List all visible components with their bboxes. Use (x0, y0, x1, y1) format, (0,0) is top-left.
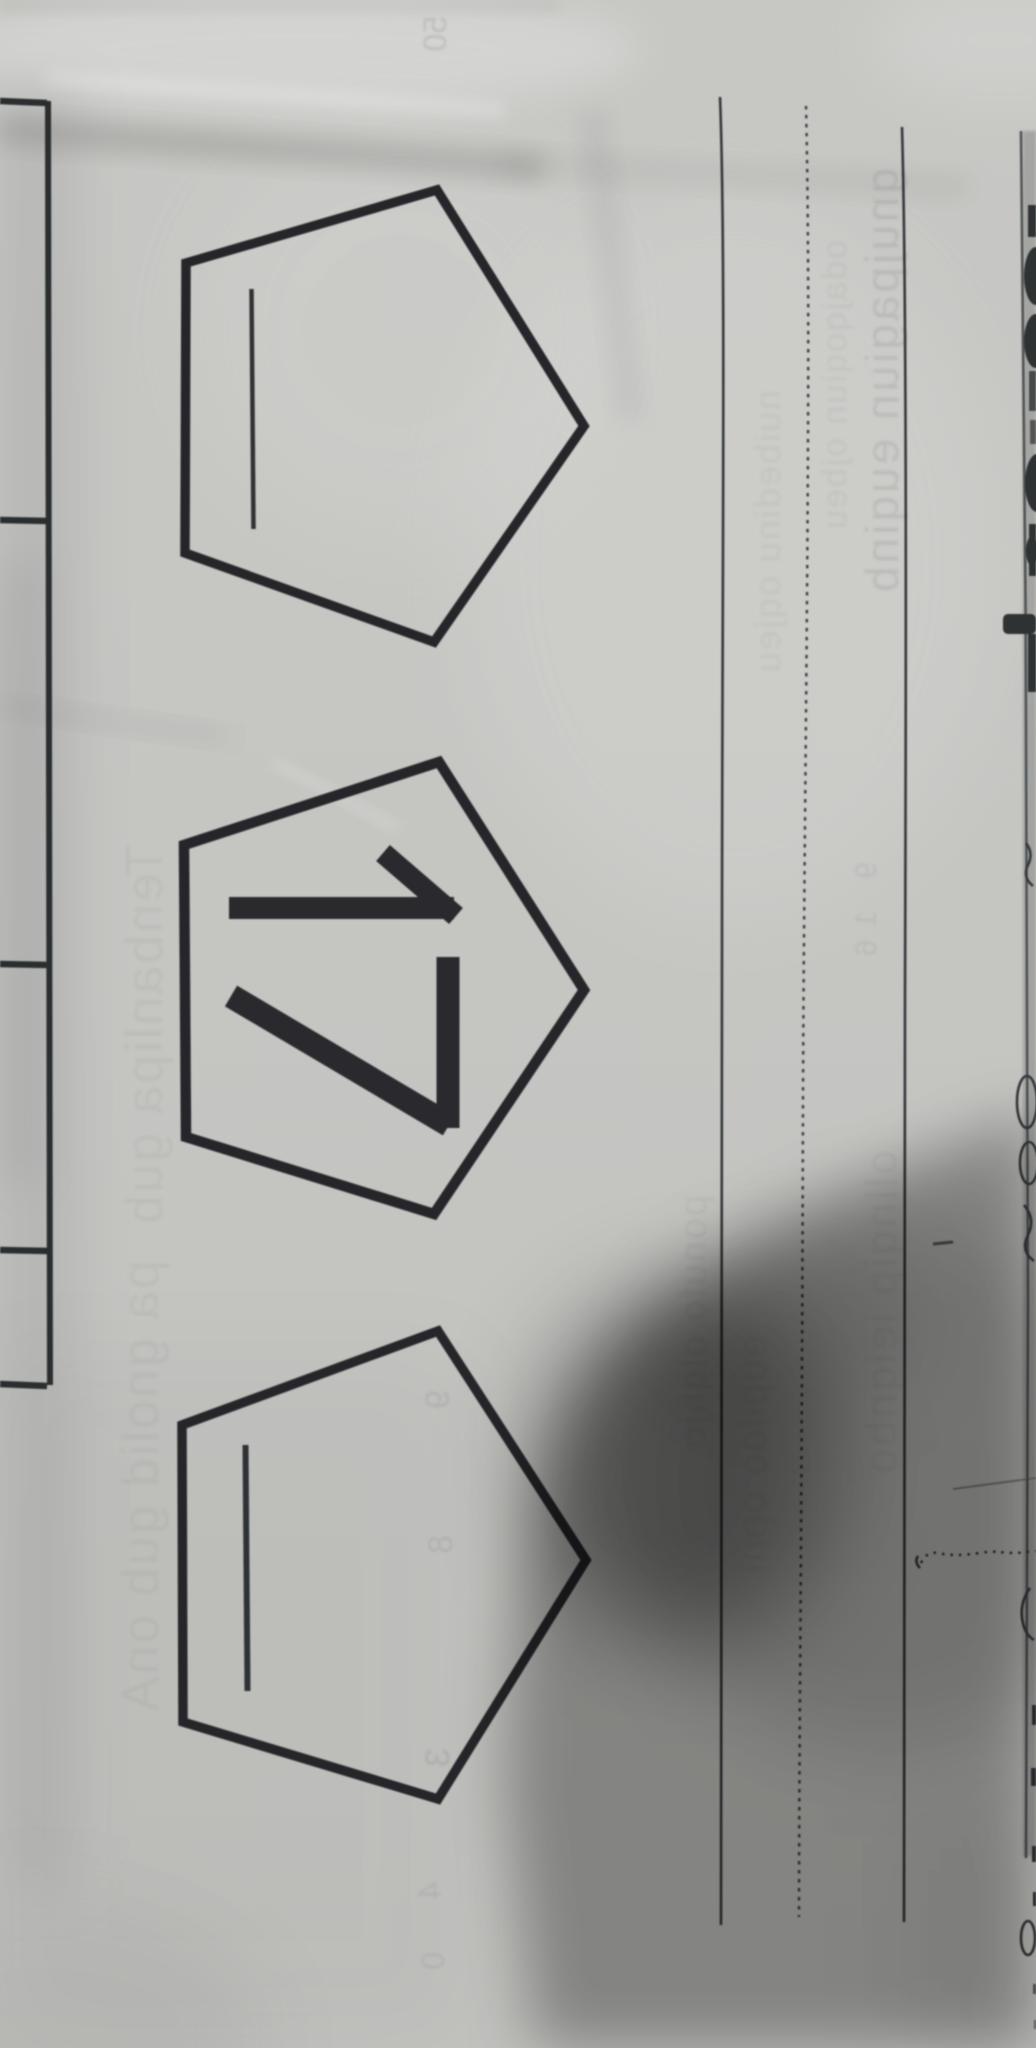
svg-text:8: 8 (422, 1535, 460, 1554)
svg-text:pa gnolid gub onA: pa gnolid gub onA (112, 1260, 170, 1713)
svg-text:4: 4 (412, 1882, 448, 1900)
svg-text:9 16: 9 16 (850, 862, 883, 968)
svg-text:9: 9 (419, 1390, 457, 1409)
svg-text:odajqoqiun ojbeu: odajqoqiun ojbeu (816, 240, 854, 531)
svg-text:3: 3 (419, 1748, 457, 1767)
svg-text:nuibedinu oqjeu: nuibedinu oqjeu (747, 390, 788, 674)
svg-text:50: 50 (417, 16, 453, 52)
svg-text:0: 0 (415, 1952, 451, 1970)
svg-text:Tenbanlipa gub: Tenbanlipa gub (116, 845, 174, 1226)
svg-text:gnujpagiun euqinb: gnujpagiun euqinb (856, 168, 908, 595)
